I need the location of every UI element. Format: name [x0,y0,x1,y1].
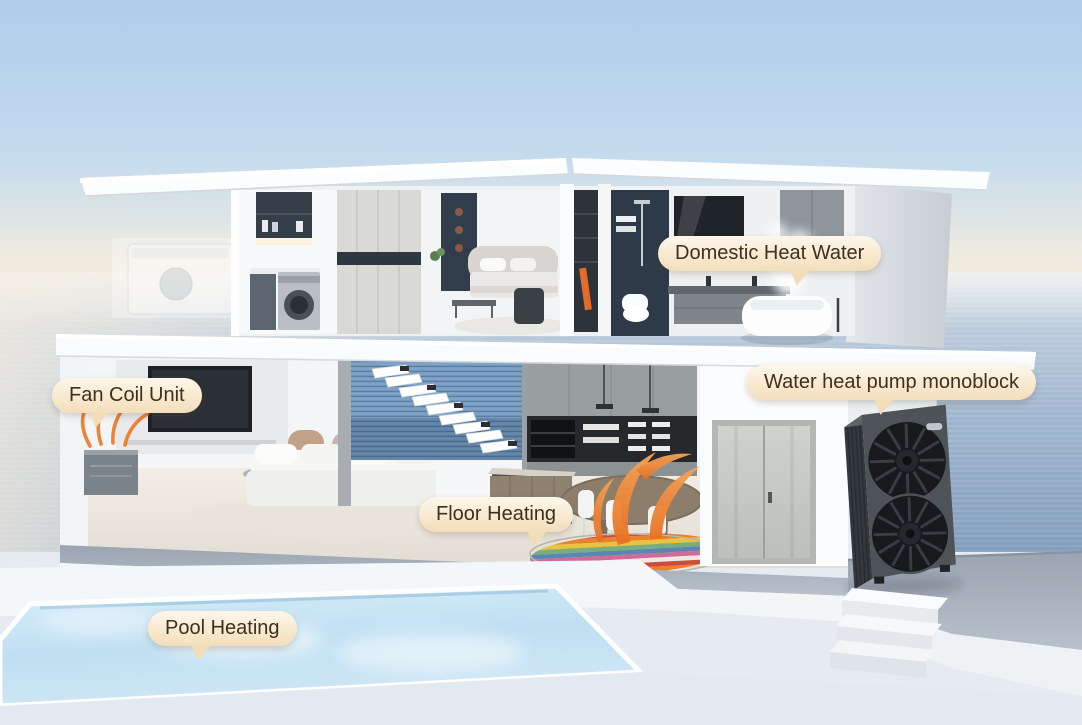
toilet [622,294,649,322]
bedroom [421,190,570,335]
washing-machine [278,272,320,330]
callout-fan-coil-unit: Fan Coil Unit [52,378,202,413]
laundry-room [237,190,337,334]
callout-floor-heating: Floor Heating [419,497,573,532]
heat-pump-unit [842,404,963,596]
bathtub [741,296,838,345]
closet-wall [337,190,421,334]
fan-coil-unit [84,450,138,495]
divider-shelving [560,184,611,336]
callout-domestic-heat-water: Domestic Heat Water [658,236,881,271]
hero-illustration: Domestic Heat Water Water heat pump mono… [0,0,1082,725]
callout-pool-heating: Pool Heating [148,611,297,646]
left-pillar [60,338,88,566]
ghost-washing-machine [112,238,244,318]
callout-water-heat-pump-monoblock: Water heat pump monoblock [747,365,1036,400]
